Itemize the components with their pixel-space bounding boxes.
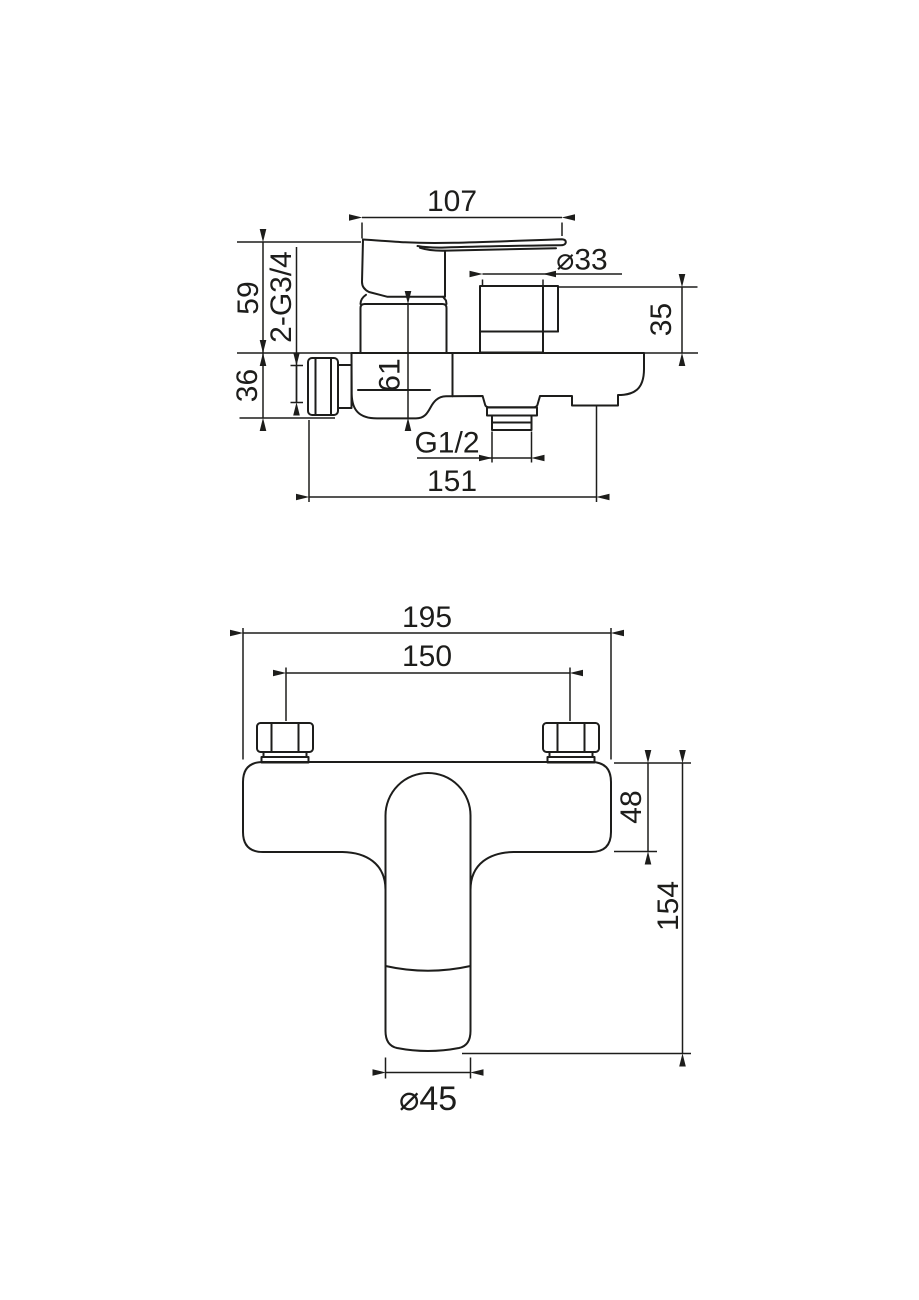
dim-label-g12: G1/2: [414, 427, 479, 460]
dim-label-61: 61: [374, 358, 407, 391]
dim-lower-height: 36: [231, 353, 335, 418]
shower-nut: [308, 358, 338, 415]
dim-label-36: 36: [231, 369, 264, 402]
front-view: [243, 723, 611, 1051]
cartridge-block: [361, 304, 447, 353]
dim-handle-length: 107: [362, 185, 562, 239]
dim-label-195: 195: [402, 601, 452, 634]
nut-collar-left: [262, 757, 309, 763]
mounting-nut-right: [543, 723, 599, 752]
dim-label-59: 59: [232, 281, 265, 314]
dim-shower-thread: 2-G3/4: [265, 247, 303, 403]
dim-label-151: 151: [427, 465, 477, 498]
dim-label-d45: ⌀45: [399, 1080, 457, 1118]
dim-label-d33: ⌀33: [556, 244, 607, 277]
dim-label-2-g34: 2-G3/4: [265, 251, 298, 343]
dim-bottom-thread: G1/2: [414, 427, 531, 463]
spout-cap-line: [386, 966, 471, 971]
handle-neck-left: [361, 295, 367, 304]
dim-mounting-centers: 150: [286, 640, 570, 721]
dim-label-154: 154: [652, 881, 685, 931]
body-bar: [243, 762, 611, 890]
front-view-dimensions: 195 150 48 154 ⌀45: [243, 601, 691, 1118]
handle-neck-right: [443, 297, 447, 304]
port-block-back: [543, 286, 558, 332]
dim-body-height: 61: [374, 304, 409, 418]
nut-collar-right: [548, 757, 595, 763]
dim-label-150: 150: [402, 640, 452, 673]
dim-overall-height: 154: [462, 763, 691, 1054]
outlet-ring: [487, 408, 537, 416]
dim-body-depth: 48: [614, 763, 657, 852]
side-view-dimensions: 107 ⌀33 59 36 2-G3/4 6: [231, 185, 698, 502]
dim-label-48: 48: [615, 790, 648, 823]
dim-spout-diameter: ⌀45: [386, 1058, 471, 1119]
dim-label-107: 107: [427, 185, 477, 218]
mounting-nut-left: [257, 723, 313, 752]
shower-collar: [338, 365, 352, 408]
technical-drawing: 107 ⌀33 59 36 2-G3/4 6: [0, 0, 919, 1300]
spout-column: [386, 773, 471, 1051]
dim-port-height: 35: [558, 287, 698, 353]
dim-label-35: 35: [645, 303, 678, 336]
port-block: [480, 286, 543, 353]
handle-lever: [363, 239, 566, 247]
drawing-canvas: 107 ⌀33 59 36 2-G3/4 6: [0, 0, 919, 1300]
